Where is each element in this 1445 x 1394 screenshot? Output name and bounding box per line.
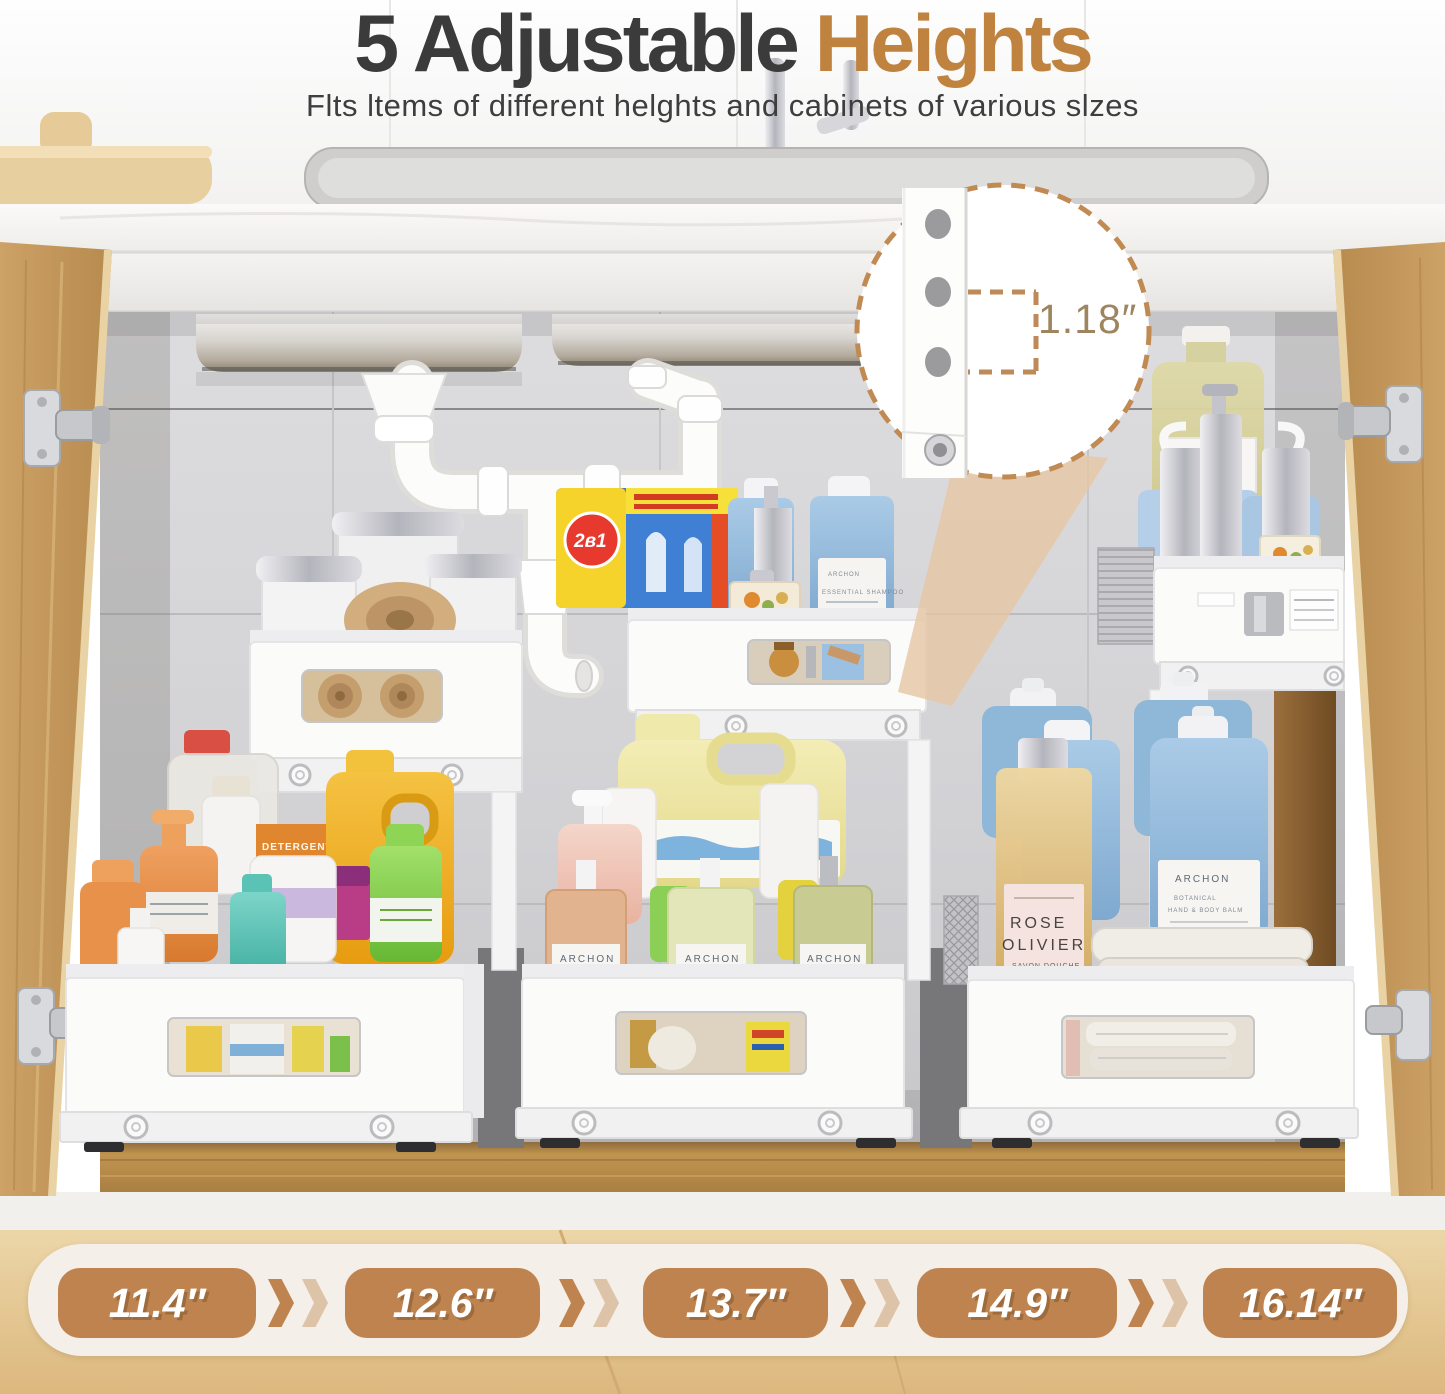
callout-measurement: 1.18″: [1038, 296, 1137, 343]
height-badge-5: 16.14″: [1203, 1268, 1397, 1338]
product-infographic: DETERGENT: [0, 0, 1445, 1394]
sink-basin-left: [196, 314, 522, 386]
detergent-box-2in1: 2в1: [556, 488, 738, 608]
sticker: [1198, 593, 1234, 606]
top-tier-basket: [1154, 556, 1344, 690]
product-label-archon: ARCHON: [560, 954, 615, 965]
page-subtitle: Flts ltems of different helghts and cabi…: [0, 88, 1445, 124]
rail-hole: [925, 209, 951, 239]
chevron-right-icon: [559, 1279, 619, 1327]
ribbed-panel: [1098, 548, 1154, 644]
chevron-right-icon: [1128, 1279, 1188, 1327]
title-accent: Heights: [815, 0, 1091, 89]
sink-rim: [305, 148, 1268, 208]
height-badge-1: 11.4″: [58, 1268, 256, 1338]
bottom-drawer: [60, 964, 484, 1152]
under-sink-scene: DETERGENT: [0, 0, 1445, 1394]
shampoo-brand: ARCHON: [828, 572, 860, 578]
rose-line2: OLIVIER: [1002, 937, 1086, 954]
detergent-box-badge: 2в1: [573, 531, 607, 552]
rose-line1: ROSE: [1010, 915, 1067, 932]
bottom-drawer: [516, 964, 912, 1148]
door-hinge: [1366, 990, 1430, 1060]
product-label-archon: ARCHON: [685, 954, 740, 965]
rail-hole: [925, 347, 951, 377]
detergent-box-label: DETERGENT: [262, 842, 333, 853]
page-title: 5 AdjustableHeights: [0, 2, 1445, 87]
shampoo-line: ESSENTIAL SHAMPOO: [822, 590, 904, 596]
bottom-drawer: [960, 966, 1358, 1148]
rail-detail: [902, 188, 966, 478]
title-prefix: 5 Adjustable: [354, 0, 797, 89]
cabinet-base-strip: [0, 1192, 1445, 1232]
chevron-right-icon: [840, 1279, 900, 1327]
rose-olivier-bottle: ROSE OLIVIER SAVON DOUCHE: [996, 738, 1092, 984]
countertop: [0, 204, 1445, 314]
product-label-archon: ARCHON: [807, 954, 862, 965]
organizer-rail: [908, 740, 930, 980]
cabinet-floor: [100, 1142, 1345, 1192]
organizer-rail: [492, 792, 516, 970]
balm-brand: ARCHON: [1175, 874, 1230, 885]
rail-hole: [925, 277, 951, 307]
balm-line1: BOTANICAL: [1174, 896, 1217, 902]
balm-line2: HAND & BODY BALM: [1168, 908, 1243, 914]
chevron-right-icon: [268, 1279, 328, 1327]
height-badge-3: 13.7″: [643, 1268, 828, 1338]
height-badge-4: 14.9″: [917, 1268, 1117, 1338]
archon-balm-bottle: ARCHON BOTANICAL HAND & BODY BALM: [1150, 706, 1268, 940]
counter-underside: [62, 254, 1384, 314]
height-badge-2: 12.6″: [345, 1268, 540, 1338]
